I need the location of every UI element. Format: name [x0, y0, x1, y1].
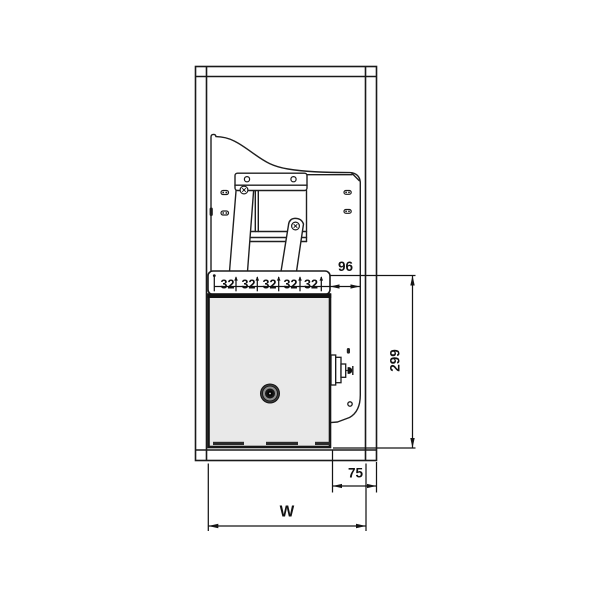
- spacing-label-32: 32: [263, 277, 277, 291]
- dim-96: 96: [330, 259, 416, 289]
- dim-299-arrow-top: [410, 276, 414, 286]
- dim-w-arrow-right: [356, 524, 366, 528]
- dim-width: W: [208, 464, 366, 532]
- bracket-hole: [291, 177, 296, 182]
- latch-carriage: [336, 357, 341, 382]
- pivot-screw-left: [240, 186, 248, 194]
- plate-edge-slot: [210, 208, 213, 217]
- slot-end-dot: [225, 192, 227, 194]
- dim-75-arrow-right: [367, 484, 377, 488]
- dim-w-arrow-left: [208, 524, 218, 528]
- drilling-template-strip: 32 32 32 32 32: [208, 271, 360, 295]
- spacing-label-32: 32: [242, 277, 256, 291]
- cabinet-lift-diagram: 32 32 32 32 32: [0, 0, 600, 600]
- slot-end-dot: [348, 211, 350, 213]
- side-latch: [331, 348, 353, 385]
- dim-299-arrow-bottom: [410, 438, 414, 448]
- dim-96-arrow-right: [351, 284, 361, 288]
- slot-end-dot: [348, 192, 350, 194]
- slot-end-dot: [222, 212, 224, 214]
- knob-center-dot: [269, 393, 271, 395]
- unit-bottom-rail: [213, 442, 244, 445]
- latch-slot: [347, 348, 350, 354]
- slot-hole: [344, 191, 351, 195]
- plate-tongue-hole: [348, 402, 352, 406]
- slot-end-dot: [225, 212, 227, 214]
- release-knob: [260, 384, 280, 404]
- dim-299-label: 299: [388, 349, 403, 372]
- latch-bar: [331, 355, 336, 385]
- unit-bottom-rail: [315, 442, 330, 445]
- slot-end-dot: [222, 192, 224, 194]
- spacing-label-32: 32: [304, 277, 318, 291]
- dim-75-arrow-left: [333, 484, 343, 488]
- lift-unit-box: [207, 295, 331, 448]
- dim-96-arrow-left: [330, 284, 340, 288]
- slot-end-dot: [345, 211, 347, 213]
- technical-drawing-canvas: 32 32 32 32 32: [0, 0, 600, 600]
- unit-bottom-rail: [266, 442, 298, 445]
- dim-75-label: 75: [348, 466, 364, 481]
- unit-body: [209, 295, 331, 448]
- spacing-label-32: 32: [221, 277, 235, 291]
- dim-299: 299: [333, 276, 416, 449]
- lift-arm-left: [230, 185, 255, 272]
- first-hole-dot: [213, 274, 216, 277]
- slot-hole: [221, 211, 229, 215]
- plate-slot-holes: [210, 191, 352, 217]
- slot-hole: [344, 210, 351, 214]
- slot-hole: [221, 191, 229, 195]
- spacing-label-32: 32: [284, 277, 298, 291]
- latch-head: [341, 364, 346, 377]
- dim-w-label: W: [280, 504, 295, 521]
- slot-end-dot: [345, 192, 347, 194]
- dim-75: 75: [333, 451, 377, 493]
- dim-96-label: 96: [338, 259, 354, 274]
- bracket-hole: [244, 177, 249, 182]
- latch-pin: [348, 367, 353, 374]
- pivot-screw-right: [292, 222, 300, 230]
